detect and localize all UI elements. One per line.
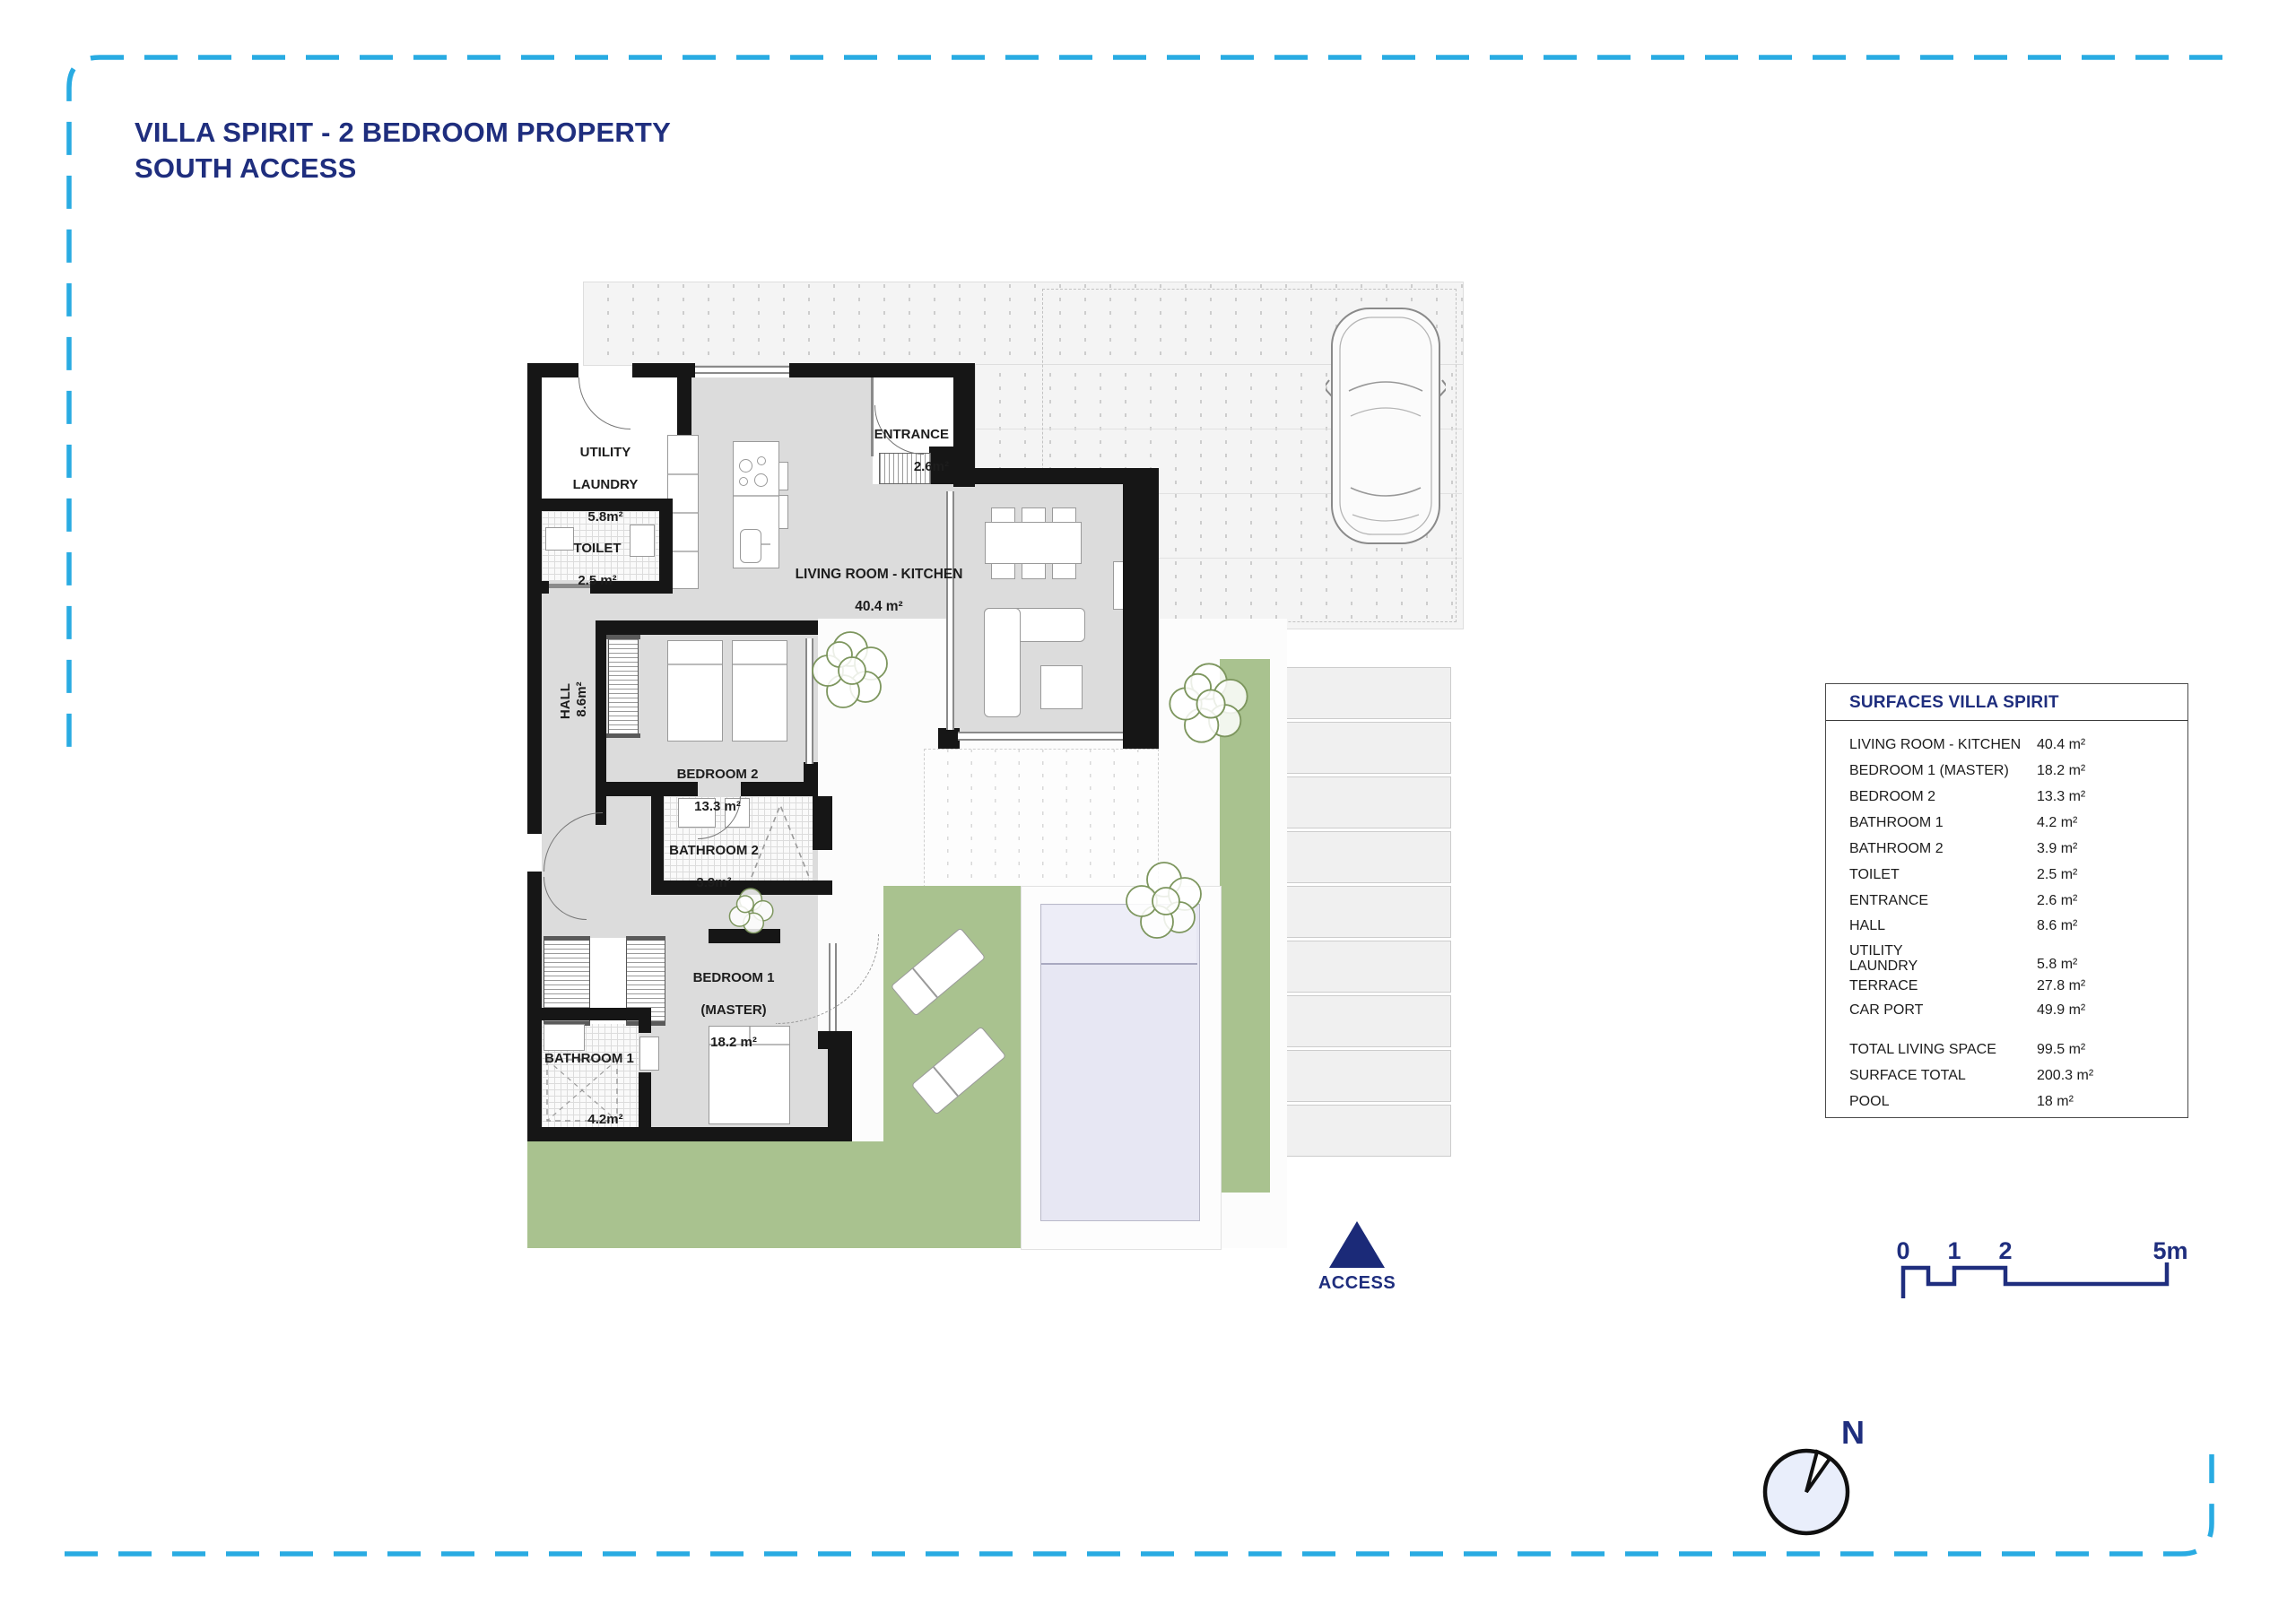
surface-row-label: HALL <box>1849 918 2037 933</box>
wall <box>938 728 960 749</box>
cooktop-burner <box>739 477 748 486</box>
label-hall: HALL 8.6m² <box>541 641 591 758</box>
label-toilet: TOILET 2.5 m² <box>535 525 660 589</box>
north-compass: N <box>1751 1415 1885 1549</box>
sofa-chaise <box>984 608 1021 717</box>
window-living-south <box>958 732 1123 741</box>
surface-row-label: SURFACE TOTAL <box>1849 1068 2037 1083</box>
scale-tick-5m: 5m <box>2152 1239 2187 1264</box>
surfaces-rows: LIVING ROOM - KITCHEN40.4 m²BEDROOM 1 (M… <box>1826 721 2187 1115</box>
surface-row-value: 27.8 m² <box>2037 978 2170 994</box>
driveway-slab <box>1270 1050 1451 1102</box>
sink-faucet <box>761 543 770 545</box>
driveway-slabs <box>1270 667 1451 1169</box>
surface-row: BATHROOM 23.9 m² <box>1849 836 2170 862</box>
driveway-slab <box>1270 886 1451 938</box>
driveway-slab <box>1270 776 1451 828</box>
driveway-slab <box>1270 1105 1451 1157</box>
access-arrow <box>1329 1221 1385 1268</box>
dining-table <box>985 522 1082 564</box>
surface-row-label: BATHROOM 2 <box>1849 841 2037 856</box>
surface-row-label: LIVING ROOM - KITCHEN <box>1849 737 2037 752</box>
surface-row-label: CAR PORT <box>1849 1002 2037 1018</box>
surfaces-table: SURFACES VILLA SPIRIT LIVING ROOM - KITC… <box>1825 683 2188 1118</box>
surface-row: HALL8.6 m² <box>1849 914 2170 938</box>
wall <box>789 363 953 377</box>
wall <box>804 762 818 784</box>
scale-tick-1: 1 <box>1947 1239 1961 1264</box>
car-icon <box>1326 301 1446 551</box>
sofa-ottoman <box>1040 665 1083 709</box>
tree-icon <box>805 626 895 716</box>
wall <box>975 468 1159 484</box>
title-line-2: SOUTH ACCESS <box>135 151 671 186</box>
surface-row: UTILITY LAUNDRY5.8 m² <box>1849 938 2170 974</box>
wall <box>953 363 975 487</box>
surface-row-value: 8.6 m² <box>2037 918 2170 934</box>
surface-row-label: TERRACE <box>1849 978 2037 993</box>
surface-row-value: 49.9 m² <box>2037 1002 2170 1019</box>
lawn-south <box>527 1141 1022 1248</box>
lawn-pool-side <box>883 886 1022 1141</box>
surface-row-label: UTILITY LAUNDRY <box>1849 943 2037 974</box>
dining-chair <box>1022 563 1046 579</box>
bed-pillow-line <box>733 664 787 665</box>
surface-row-label: BEDROOM 2 <box>1849 789 2037 804</box>
bed-bedroom2 <box>667 640 723 742</box>
surface-row-label: TOTAL LIVING SPACE <box>1849 1042 2037 1057</box>
bed-pillow-line <box>668 664 722 665</box>
page-title: VILLA SPIRIT - 2 BEDROOM PROPERTY SOUTH … <box>135 115 671 186</box>
island-divider <box>734 495 778 497</box>
label-bedroom2: BEDROOM 2 13.3 m² <box>637 750 798 815</box>
surface-row-value: 200.3 m² <box>2037 1068 2170 1084</box>
pool-step-line <box>1041 963 1197 965</box>
wall <box>527 1127 852 1141</box>
wall <box>639 1020 651 1033</box>
surface-row-value: 18.2 m² <box>2037 763 2170 779</box>
wardrobe-cap <box>626 936 665 941</box>
surface-row-label: BEDROOM 1 (MASTER) <box>1849 763 2037 778</box>
driveway-slab <box>1270 831 1451 883</box>
surface-row-label: BATHROOM 1 <box>1849 815 2037 830</box>
island-appliance <box>778 462 788 490</box>
wall <box>818 1031 852 1049</box>
surface-row-value: 18 m² <box>2037 1094 2170 1110</box>
surface-row: TOTAL LIVING SPACE99.5 m² <box>1849 1037 2170 1063</box>
north-label: N <box>1841 1415 1865 1451</box>
label-bathroom1: BATHROOM 1 <box>531 1035 648 1067</box>
title-line-1: VILLA SPIRIT - 2 BEDROOM PROPERTY <box>135 115 671 151</box>
surface-row: ENTRANCE2.6 m² <box>1849 888 2170 914</box>
floorplan-page: VILLA SPIRIT - 2 BEDROOM PROPERTY SOUTH … <box>0 0 2296 1622</box>
window <box>695 366 789 374</box>
bed-bedroom2 <box>732 640 787 742</box>
driveway-slab <box>1270 995 1451 1047</box>
surface-row-value: 4.2 m² <box>2037 815 2170 831</box>
wall <box>1123 484 1159 749</box>
wall <box>527 872 542 1141</box>
cooktop-burner <box>739 459 752 473</box>
wall <box>813 796 832 850</box>
cooktop-burner <box>757 456 766 465</box>
surface-row-value: 2.5 m² <box>2037 867 2170 883</box>
wardrobe-cap <box>606 635 640 639</box>
access-label: ACCESS <box>1308 1273 1406 1294</box>
driveway-slab <box>1270 941 1451 993</box>
wall <box>596 635 606 825</box>
surface-row-value: 99.5 m² <box>2037 1042 2170 1058</box>
tree-icon <box>1119 856 1209 946</box>
label-entrance: ENTRANCE 2.6m² <box>852 411 949 475</box>
surface-row: BEDROOM 1 (MASTER)18.2 m² <box>1849 758 2170 784</box>
scale-bar: 0 1 2 5m <box>1891 1239 2206 1305</box>
scale-tick-0: 0 <box>1896 1239 1909 1264</box>
surfaces-table-title: SURFACES VILLA SPIRIT <box>1826 684 2187 720</box>
surface-row-label: TOILET <box>1849 867 2037 882</box>
wardrobe-cap <box>544 936 590 941</box>
surface-row-value: 40.4 m² <box>2037 737 2170 753</box>
surface-row-value: 5.8 m² <box>2037 957 2170 974</box>
label-bathroom1-area: 4.2m² <box>556 1096 655 1128</box>
surface-row: BATHROOM 14.2 m² <box>1849 810 2170 836</box>
label-bathroom2: BATHROOM 2 3.9m² <box>642 827 786 891</box>
wall <box>677 377 691 435</box>
surface-row: CAR PORT49.9 m² <box>1849 998 2170 1022</box>
wardrobe-bedroom2 <box>608 638 639 735</box>
surface-row-value: 3.9 m² <box>2037 841 2170 857</box>
tree-icon <box>1162 657 1256 750</box>
label-living: LIVING ROOM - KITCHEN 40.4 m² <box>789 551 969 615</box>
surface-row: SURFACE TOTAL200.3 m² <box>1849 1063 2170 1089</box>
surface-row-label: ENTRANCE <box>1849 893 2037 908</box>
cooktop-burner <box>754 473 768 487</box>
surfaces-separator <box>1849 1028 2170 1030</box>
label-utility: UTILITY LAUNDRY 5.8m² <box>538 429 673 525</box>
driveway-slab <box>1270 722 1451 774</box>
dining-chair <box>991 563 1015 579</box>
dining-chair <box>1052 563 1076 579</box>
surface-row: BEDROOM 213.3 m² <box>1849 784 2170 810</box>
wall <box>632 363 695 377</box>
surface-row: TOILET2.5 m² <box>1849 862 2170 888</box>
driveway-slab <box>1270 667 1451 719</box>
surface-row-value: 2.6 m² <box>2037 893 2170 909</box>
surface-row: TERRACE27.8 m² <box>1849 974 2170 998</box>
wardrobe-cap <box>606 733 640 738</box>
scale-tick-2: 2 <box>1998 1239 2012 1264</box>
surface-row: LIVING ROOM - KITCHEN40.4 m² <box>1849 732 2170 758</box>
surface-row: POOL18 m² <box>1849 1089 2170 1115</box>
tree-icon <box>723 884 778 940</box>
island-appliance <box>778 495 788 529</box>
surface-row-value: 13.3 m² <box>2037 789 2170 805</box>
label-bedroom1: BEDROOM 1 (MASTER) 18.2 m² <box>653 954 814 1051</box>
wall <box>596 620 818 635</box>
wall <box>527 1008 651 1020</box>
kitchen-sink <box>740 529 761 563</box>
surface-row-label: POOL <box>1849 1094 2037 1109</box>
